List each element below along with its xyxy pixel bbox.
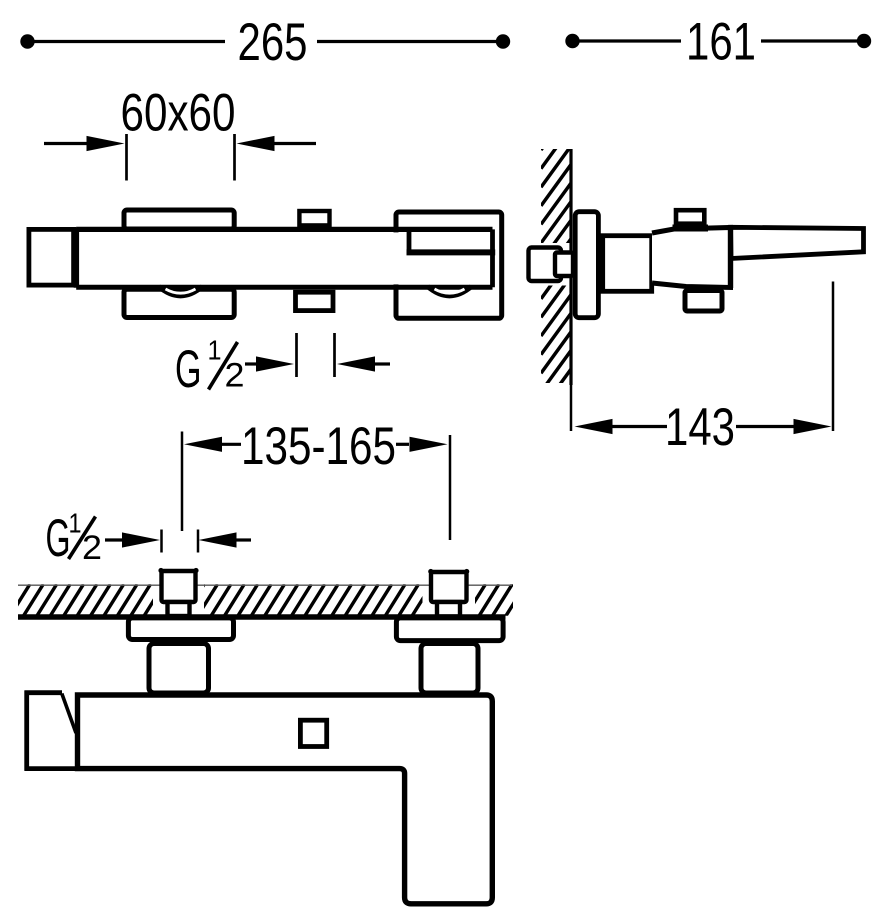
svg-text:1: 1 <box>69 508 82 539</box>
svg-text:265: 265 <box>238 13 308 72</box>
svg-text:143: 143 <box>665 398 735 457</box>
svg-text:60x60: 60x60 <box>121 83 236 142</box>
svg-text:135-165: 135-165 <box>241 417 396 476</box>
svg-text:G: G <box>175 340 202 399</box>
svg-text:2: 2 <box>82 529 102 567</box>
svg-text:2: 2 <box>225 357 245 395</box>
svg-text:161: 161 <box>686 13 756 72</box>
svg-text:G: G <box>46 509 71 568</box>
svg-text:1: 1 <box>208 335 222 366</box>
